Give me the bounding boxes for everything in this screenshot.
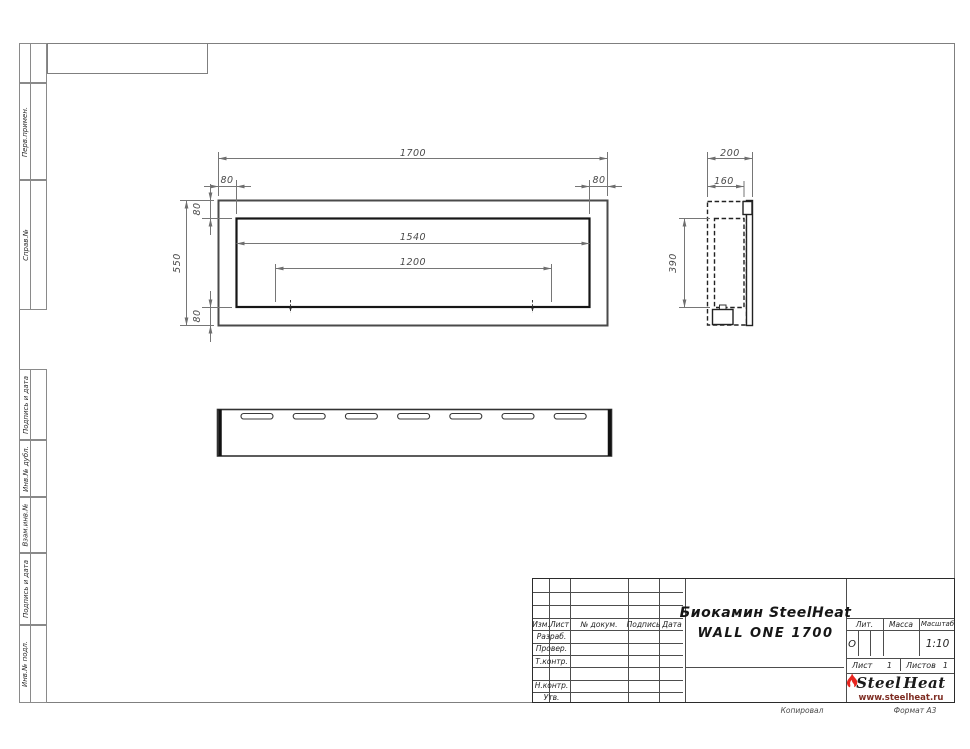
grid-line	[870, 630, 871, 656]
sidebar-cell-podpis-data-1: Подпись и дата	[19, 369, 47, 440]
row-utv: Утв.	[533, 692, 570, 704]
col-izm: Изм.	[533, 618, 549, 630]
dim-front-left-offset: 80	[212, 173, 242, 189]
sidebar-cell-podpis-data-2: Подпись и дата	[19, 553, 47, 625]
grid-line	[570, 579, 571, 702]
grid-line	[858, 630, 859, 656]
dim-front-burner: 1200	[383, 255, 443, 271]
logo-heat-text: Heat	[903, 674, 945, 692]
sidebar-label: Подпись и дата	[22, 560, 30, 618]
grid-line	[533, 592, 683, 593]
divider	[30, 44, 31, 82]
grid-line	[685, 667, 844, 668]
product-name-line1: Биокамин SteelHeat	[680, 605, 852, 621]
logo-steel-text: Steel	[856, 674, 901, 692]
grid-line	[659, 579, 660, 702]
scale-label: Масштаб	[919, 618, 956, 630]
sheet-number: 1	[887, 661, 892, 670]
mass-label: Масса	[883, 618, 919, 630]
dim-front-width: 1700	[383, 146, 443, 162]
dim-side-depth: 200	[706, 146, 754, 162]
lit-label: Лит.	[846, 618, 883, 630]
col-podpis: Подпись	[628, 618, 659, 630]
sidebar-label: Инв.№ подл.	[22, 641, 30, 687]
sheets-label: Листов	[906, 661, 936, 670]
dim-front-height: 550	[170, 241, 186, 285]
grid-line	[628, 579, 629, 702]
row-tkontr: Т.контр.	[533, 655, 570, 667]
drawing-sheet: Перв.примен. Справ.№ Подпись и дата Инв.…	[0, 0, 970, 749]
row-prover: Провер.	[533, 643, 570, 655]
sheet-cell: Лист 1	[846, 658, 900, 673]
sidebar-label: Инв.№ дубл.	[22, 446, 30, 492]
lit-value: О	[846, 630, 858, 658]
copied-by-note: Копировал	[757, 706, 847, 715]
logo-url: www.steelheat.ru	[859, 693, 944, 703]
dim-side-height: 390	[666, 243, 682, 283]
sidebar-cell-perv-primen: Перв.примен.	[19, 83, 47, 180]
product-name: Биокамин SteelHeat WALL ONE 1700	[685, 579, 846, 667]
sidebar-label: Взам.инв.№	[22, 503, 30, 546]
sidebar-cell-vzam-inv: Взам.инв.№	[19, 497, 47, 553]
dim-side-inner-depth: 160	[701, 174, 747, 190]
sidebar-cell-inv-podl: Инв.№ подл.	[19, 625, 47, 703]
title-block: Изм. Лист № докум. Подпись Дата Разраб. …	[532, 578, 955, 703]
row-blank	[533, 667, 570, 679]
sidebar-label: Справ.№	[22, 229, 30, 261]
dim-front-top-offset: 80	[190, 194, 206, 224]
sidebar-label: Подпись и дата	[22, 376, 30, 434]
sheet-label: Лист	[852, 661, 872, 670]
row-nkontr: Н.контр.	[533, 680, 570, 692]
sheets-total: 1	[943, 661, 948, 670]
dim-front-right-offset: 80	[584, 173, 614, 189]
dim-front-opening: 1540	[383, 230, 443, 246]
sidebar-cell-inv-dubl: Инв.№ дубл.	[19, 440, 47, 497]
sidebar-cell-empty	[19, 43, 47, 83]
sidebar-label: Перв.примен.	[22, 106, 30, 156]
sidebar-cell-sprav: Справ.№	[19, 180, 47, 310]
format-note: Формат А3	[872, 706, 958, 715]
top-reference-box	[47, 43, 208, 74]
company-logo: Steel Heat www.steelheat.ru	[846, 673, 956, 704]
col-list: Лист	[549, 618, 570, 630]
grid-line	[533, 605, 683, 606]
scale-value: 1:10	[919, 630, 956, 658]
row-razrab: Разраб.	[533, 630, 570, 642]
product-name-line2: WALL ONE 1700	[697, 626, 833, 641]
col-dokum: № докум.	[570, 618, 628, 630]
sheets-cell: Листов 1	[900, 658, 956, 673]
logo-wordmark: Steel Heat	[856, 674, 945, 692]
dim-front-bottom-offset: 80	[190, 301, 206, 331]
